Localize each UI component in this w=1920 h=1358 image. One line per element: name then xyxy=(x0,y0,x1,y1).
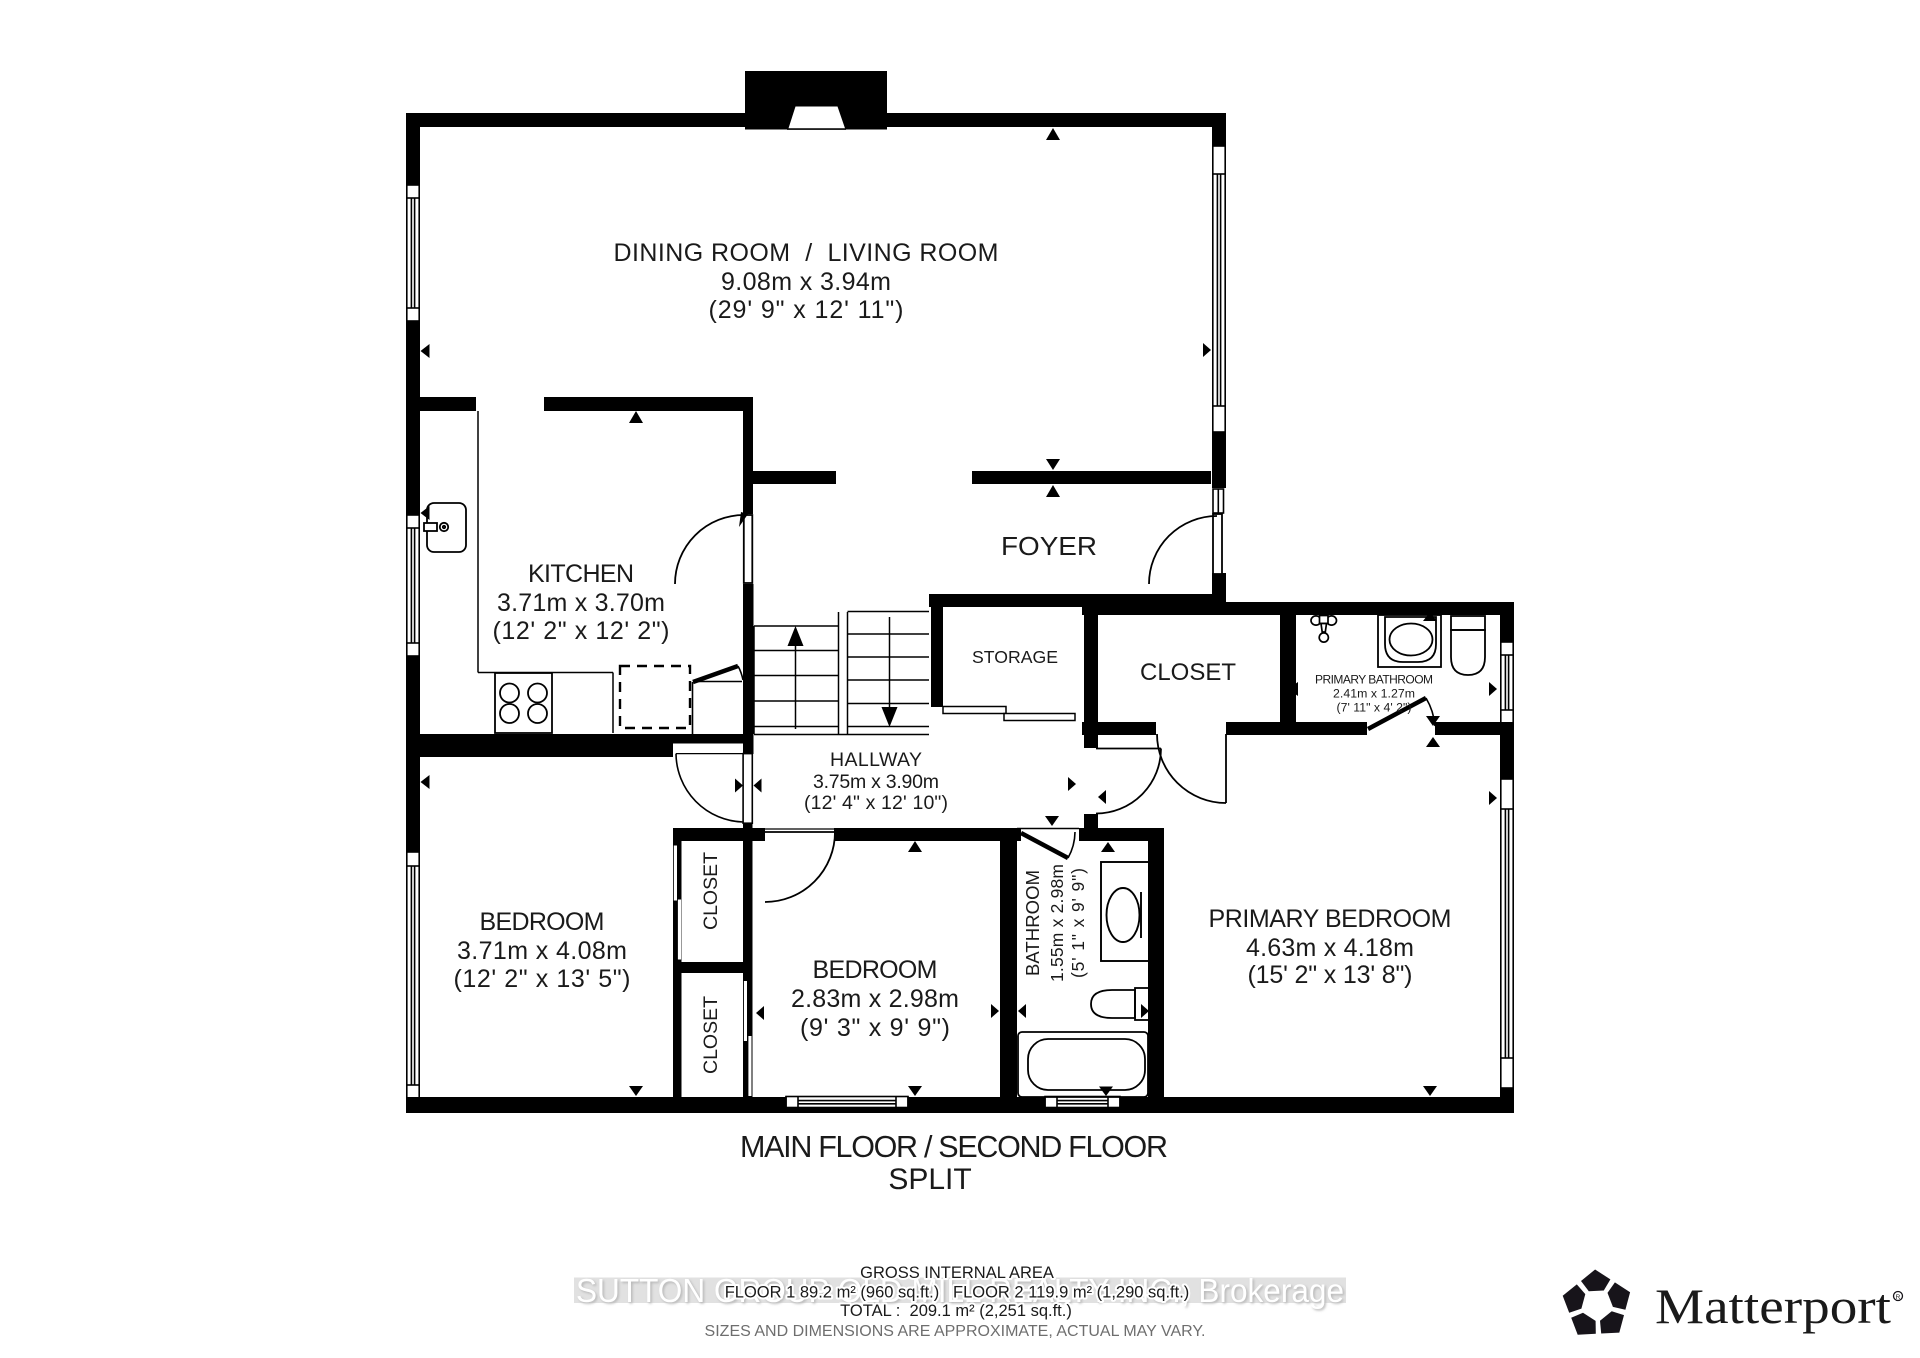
svg-text:(7' 11" x 4' 2"): (7' 11" x 4' 2") xyxy=(1337,701,1412,715)
svg-text:CLOSET: CLOSET xyxy=(700,852,722,930)
svg-text:PRIMARY BATHROOM: PRIMARY BATHROOM xyxy=(1315,673,1433,687)
svg-text:(12' 4" x 12' 10"): (12' 4" x 12' 10") xyxy=(804,792,948,814)
svg-text:9.08m x 3.94m: 9.08m x 3.94m xyxy=(721,268,891,296)
svg-text:3.75m x 3.90m: 3.75m x 3.90m xyxy=(813,771,939,793)
svg-text:(29' 9" x 12' 11"): (29' 9" x 12' 11") xyxy=(709,296,904,324)
svg-text:TOTAL : 209.1 m² (2,251 sq.ft: TOTAL : 209.1 m² (2,251 sq.ft.) xyxy=(840,1302,1072,1320)
svg-text:(5' 1" x 9' 9"): (5' 1" x 9' 9") xyxy=(1068,868,1088,978)
svg-text:(9' 3" x 9' 9"): (9' 3" x 9' 9") xyxy=(800,1014,950,1042)
svg-text:KITCHEN: KITCHEN xyxy=(528,560,634,588)
svg-text:(12' 2" x 13' 5"): (12' 2" x 13' 5") xyxy=(454,965,631,993)
svg-text:PRIMARY BEDROOM: PRIMARY BEDROOM xyxy=(1209,905,1452,933)
svg-text:FLOOR 1 89.2 m² (960 sq.ft.): FLOOR 1 89.2 m² (960 sq.ft.) FLOOR 2 119… xyxy=(725,1284,1190,1302)
svg-text:3.71m x 3.70m: 3.71m x 3.70m xyxy=(497,589,665,617)
svg-text:DINING ROOM / LIVING ROOM: DINING ROOM / LIVING ROOM xyxy=(614,239,999,267)
svg-text:GROSS INTERNAL AREA: GROSS INTERNAL AREA xyxy=(860,1264,1054,1282)
svg-text:FOYER: FOYER xyxy=(1001,531,1097,561)
svg-text:(15' 2" x 13' 8"): (15' 2" x 13' 8") xyxy=(1248,961,1413,989)
svg-text:1.55m x 2.98m: 1.55m x 2.98m xyxy=(1047,864,1067,982)
svg-text:4.63m x 4.18m: 4.63m x 4.18m xyxy=(1246,934,1414,962)
svg-text:BATHROOM: BATHROOM xyxy=(1022,870,1043,976)
svg-text:SPLIT: SPLIT xyxy=(888,1163,971,1196)
svg-text:SIZES AND DIMENSIONS ARE APPRO: SIZES AND DIMENSIONS ARE APPROXIMATE, AC… xyxy=(705,1323,1206,1340)
svg-text:BEDROOM: BEDROOM xyxy=(480,908,605,936)
svg-text:BEDROOM: BEDROOM xyxy=(813,956,938,984)
svg-text:2.41m x 1.27m: 2.41m x 1.27m xyxy=(1333,687,1415,701)
svg-text:MAIN FLOOR / SECOND FLOOR: MAIN FLOOR / SECOND FLOOR xyxy=(740,1130,1168,1164)
svg-text:3.71m x 4.08m: 3.71m x 4.08m xyxy=(457,937,627,965)
svg-text:(12' 2" x 12' 2"): (12' 2" x 12' 2") xyxy=(493,617,670,645)
svg-text:R: R xyxy=(1896,1294,1901,1301)
svg-text:CLOSET: CLOSET xyxy=(1140,659,1236,686)
svg-text:2.83m x 2.98m: 2.83m x 2.98m xyxy=(791,985,959,1013)
svg-text:STORAGE: STORAGE xyxy=(972,647,1058,667)
svg-text:HALLWAY: HALLWAY xyxy=(830,749,922,771)
svg-text:CLOSET: CLOSET xyxy=(700,996,722,1074)
svg-text:Matterport: Matterport xyxy=(1655,1278,1891,1334)
